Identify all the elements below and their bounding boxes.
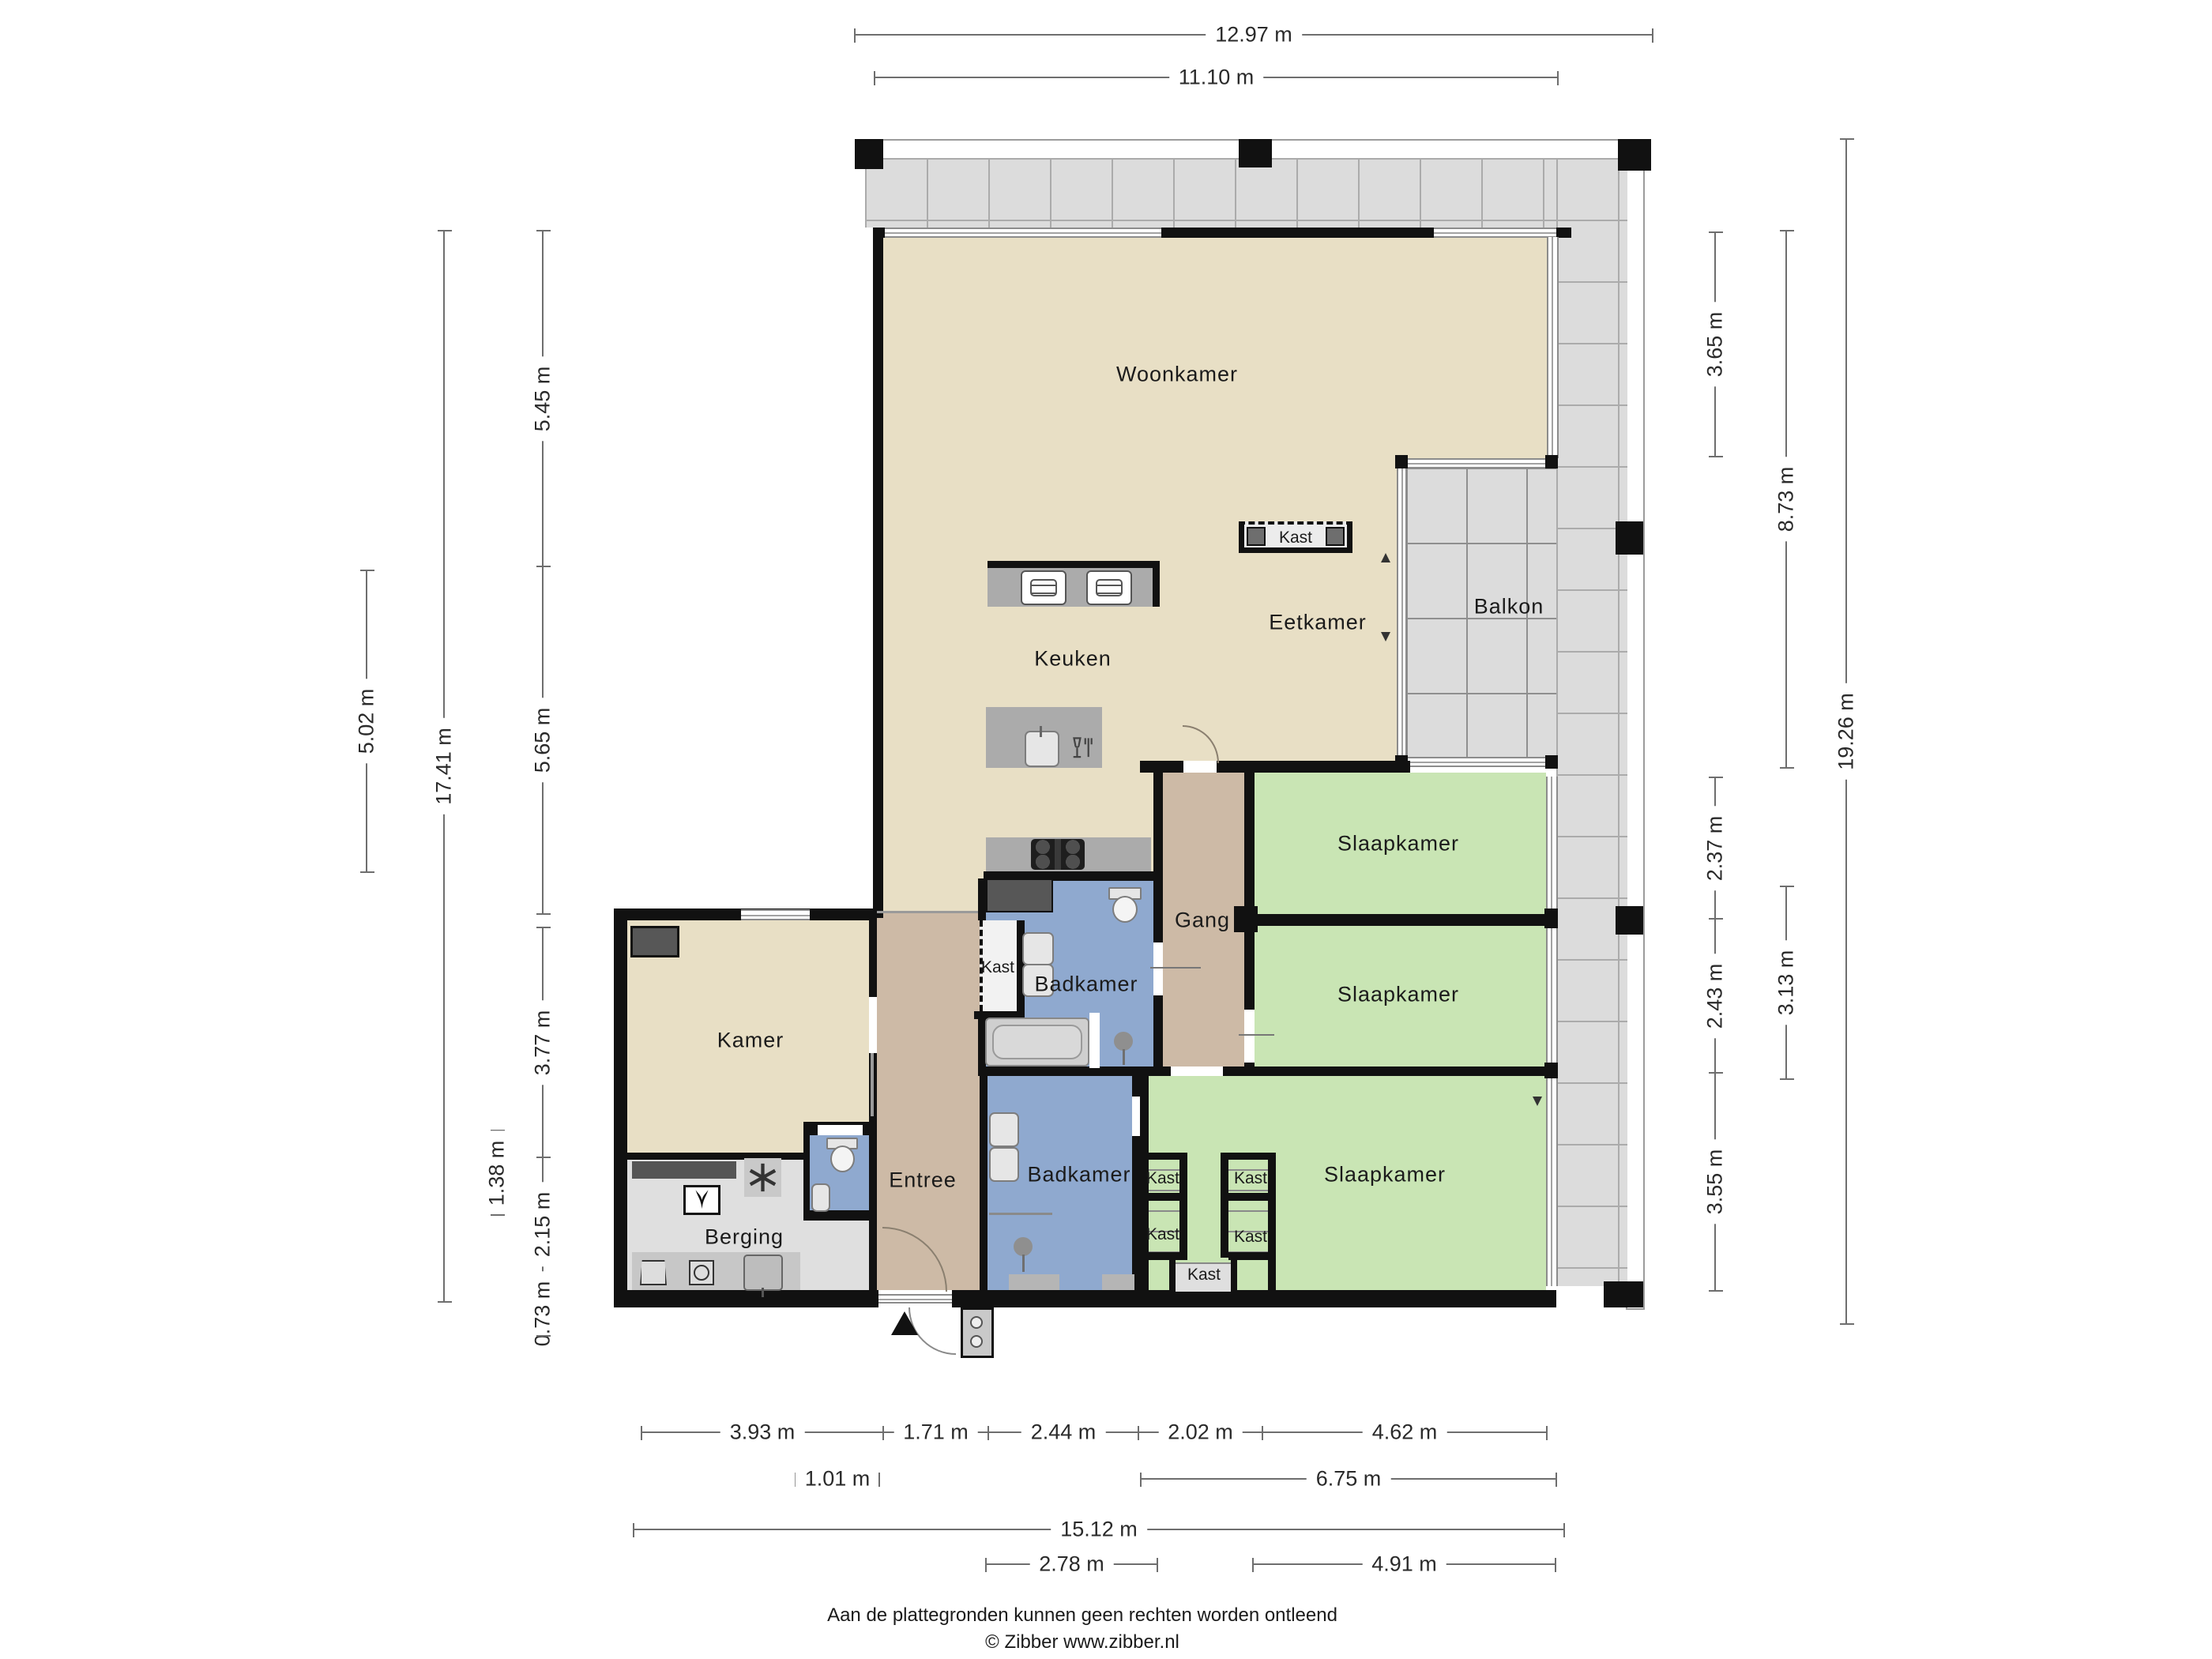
floor-plan: Woonkamer Kast Eetkamer Balkon Keuken Sl… — [0, 0, 2212, 1659]
room-label-kast-a: Kast — [1146, 1169, 1179, 1188]
room-label-kast-d: Kast — [1234, 1228, 1267, 1247]
door-opening — [869, 997, 877, 1053]
door-opening — [1153, 942, 1163, 995]
dimension: 15.12 m — [634, 1529, 1564, 1530]
oven-icon — [1086, 570, 1132, 605]
shower-stem-icon — [1123, 1049, 1125, 1065]
room-label-kast-e: Kast — [1187, 1266, 1221, 1285]
dimension: 17.41 m — [443, 231, 445, 1302]
balcony-strip-right — [1556, 158, 1627, 1286]
dimension: 3.77 m — [542, 927, 544, 1157]
room-label-berging: Berging — [705, 1225, 784, 1250]
dimension: 2.15 m — [542, 1157, 544, 1291]
toilet-bowl-icon — [1112, 896, 1138, 923]
dimension: 1.01 m — [796, 1478, 879, 1480]
dimension: 3.13 m — [1785, 886, 1787, 1079]
dimension: 3.55 m — [1714, 1073, 1716, 1291]
wall — [1149, 1193, 1179, 1201]
sliding-door-arrow — [1533, 1097, 1542, 1106]
pillar — [1239, 139, 1272, 167]
wall — [1179, 1153, 1187, 1258]
wall-corner — [1395, 455, 1408, 468]
wall-bedrooms-1-2 — [1255, 914, 1544, 926]
room-label-kast-b: Kast — [1234, 1169, 1267, 1188]
wall-left — [873, 228, 883, 918]
window-bedroom3 — [1546, 1076, 1558, 1286]
window-balcony-bottom — [1408, 757, 1547, 767]
dimension: 4.62 m — [1262, 1431, 1547, 1433]
meter-dial-icon — [970, 1335, 983, 1348]
room-label-badkamer-1: Badkamer — [1034, 972, 1138, 997]
wall — [1140, 761, 1410, 773]
door-opening — [818, 1125, 863, 1135]
berging-shelf — [632, 1161, 736, 1179]
window — [885, 228, 1161, 238]
threshold — [877, 911, 978, 913]
wall — [987, 561, 1160, 568]
kitchen-cabinet — [986, 878, 1053, 912]
window-balcony-left — [1397, 468, 1407, 757]
window-dining — [1547, 237, 1559, 458]
room-label-balkon: Balkon — [1474, 595, 1544, 619]
washing-machine-icon — [689, 1260, 714, 1285]
wall-corner — [1544, 1063, 1558, 1078]
meter-box — [961, 1307, 994, 1358]
dimension: 8.73 m — [1785, 231, 1787, 768]
oven-icon — [1021, 570, 1066, 605]
balcony-railing-right — [1626, 139, 1645, 1310]
door-leaf — [1239, 1034, 1274, 1036]
wall — [1228, 1193, 1268, 1201]
utility-sink-icon — [743, 1255, 783, 1291]
wall-corner — [1544, 908, 1558, 928]
washbasin-icon — [1022, 932, 1054, 965]
room-label-kast-hal: Kast — [981, 958, 1014, 977]
wall — [978, 878, 986, 920]
meter-dial-icon — [970, 1316, 983, 1329]
dimension: 1.38 m — [496, 1130, 498, 1215]
shower-head-icon — [1114, 1032, 1133, 1051]
room-label-slaapkamer-3: Slaapkamer — [1324, 1163, 1446, 1187]
shower-stem-icon — [1022, 1255, 1025, 1272]
pillar — [1618, 139, 1651, 171]
room-label-eetkamer: Eetkamer — [1269, 611, 1367, 635]
wall-annex-left — [614, 908, 627, 1307]
room-label-keuken: Keuken — [1034, 647, 1112, 671]
window — [1434, 228, 1556, 238]
stove-icon — [1031, 839, 1085, 870]
bathtub-icon — [985, 1018, 1089, 1066]
wall-bottom — [614, 1290, 1556, 1307]
wall-bedrooms-2-3 — [1244, 1066, 1544, 1076]
dimension: 2.37 m — [1714, 777, 1716, 919]
window-bedroom2 — [1546, 926, 1558, 1063]
dimension: 5.45 m — [542, 231, 544, 566]
room-label-gang: Gang — [1175, 908, 1230, 933]
room-label-slaapkamer-1: Slaapkamer — [1337, 832, 1459, 856]
entry-threshold — [878, 1294, 952, 1303]
window-bedroom1 — [1546, 777, 1558, 908]
wall — [978, 1066, 1153, 1076]
sink-icon — [1025, 731, 1059, 767]
wall — [1221, 1153, 1228, 1258]
disclaimer-text: Aan de plattegronden kunnen geen rechten… — [827, 1602, 1337, 1629]
shower-head-icon — [1014, 1237, 1033, 1256]
toilet-bowl-icon — [830, 1145, 855, 1172]
wall — [1268, 1153, 1276, 1290]
wall — [803, 1210, 877, 1221]
room-berging2 — [803, 1221, 877, 1290]
room-label-badkamer-2: Badkamer — [1027, 1163, 1130, 1187]
room-label-kast-wardrobe: Kast — [1279, 529, 1312, 547]
wall-corner — [1545, 455, 1558, 468]
wall — [1231, 1258, 1237, 1290]
dishwasher-icon — [1066, 733, 1097, 763]
room-woonkamer — [880, 235, 1550, 468]
dimension: 11.10 m — [875, 77, 1558, 78]
sliding-door-arrow — [1381, 553, 1390, 562]
dimension: 6.75 m — [1141, 1478, 1556, 1480]
dimension: 2.44 m — [988, 1431, 1138, 1433]
shower-mat — [1009, 1274, 1059, 1290]
pillar — [1616, 906, 1643, 935]
boiler-cabinet — [683, 1185, 720, 1215]
balcony-strip-top — [865, 158, 1627, 228]
shower-mat — [1102, 1274, 1134, 1290]
window — [741, 909, 810, 920]
sliding-door — [871, 1053, 874, 1116]
window-balcony-top — [1408, 458, 1547, 468]
sliding-door-arrow — [1381, 632, 1390, 641]
room-label-slaapkamer-2: Slaapkamer — [1337, 983, 1459, 1007]
washbasin-icon — [989, 1147, 1019, 1182]
towel-bar-icon — [989, 1213, 1052, 1215]
room-label-woonkamer: Woonkamer — [1116, 363, 1238, 387]
washbasin-icon — [989, 1112, 1019, 1147]
door-leaf — [1150, 967, 1201, 969]
kamer-cabinet — [630, 926, 679, 957]
dimension: 0.73 m — [542, 1291, 544, 1336]
dimension: 5.65 m — [542, 566, 544, 914]
dimension: 2.78 m — [986, 1563, 1157, 1565]
dimension: 3.93 m — [641, 1431, 883, 1433]
wall — [1153, 561, 1160, 607]
plant-icon — [686, 1187, 718, 1213]
ventilation-box — [744, 1158, 781, 1197]
dimension: 3.65 m — [1714, 232, 1716, 457]
wall — [1153, 772, 1163, 1076]
wall — [803, 1122, 810, 1221]
room-label-kamer: Kamer — [717, 1029, 784, 1053]
washbasin-icon — [811, 1183, 830, 1212]
pillar — [1616, 521, 1643, 555]
room-label-entree: Entree — [889, 1168, 957, 1193]
copyright-text: © Zibber www.zibber.nl — [827, 1629, 1337, 1656]
footer-disclaimer: Aan de plattegronden kunnen geen rechten… — [827, 1602, 1337, 1656]
pillar — [1604, 1281, 1643, 1307]
door-opening — [1171, 1066, 1223, 1076]
dimension: 4.91 m — [1253, 1563, 1556, 1565]
dimension: 2.43 m — [1714, 919, 1716, 1073]
entrance-marker-icon — [891, 1311, 918, 1335]
shower-divider — [1089, 1013, 1100, 1068]
dimension: 2.02 m — [1138, 1431, 1262, 1433]
door-opening — [1244, 1010, 1255, 1063]
dimension: 1.71 m — [883, 1431, 988, 1433]
dimension: 5.02 m — [366, 570, 367, 872]
dimension: 19.26 m — [1845, 139, 1847, 1324]
pillar — [855, 139, 883, 169]
laundry-basket-icon — [640, 1260, 667, 1285]
wall — [1169, 1258, 1176, 1290]
wall-corner — [1545, 755, 1558, 769]
room-keuken-floor2 — [877, 871, 984, 915]
wall — [980, 1076, 987, 1290]
wall — [1149, 1252, 1187, 1260]
door-opening — [1132, 1097, 1140, 1136]
fan-icon — [744, 1158, 781, 1197]
dimension: 12.97 m — [855, 34, 1653, 36]
room-label-kast-c: Kast — [1146, 1225, 1179, 1244]
